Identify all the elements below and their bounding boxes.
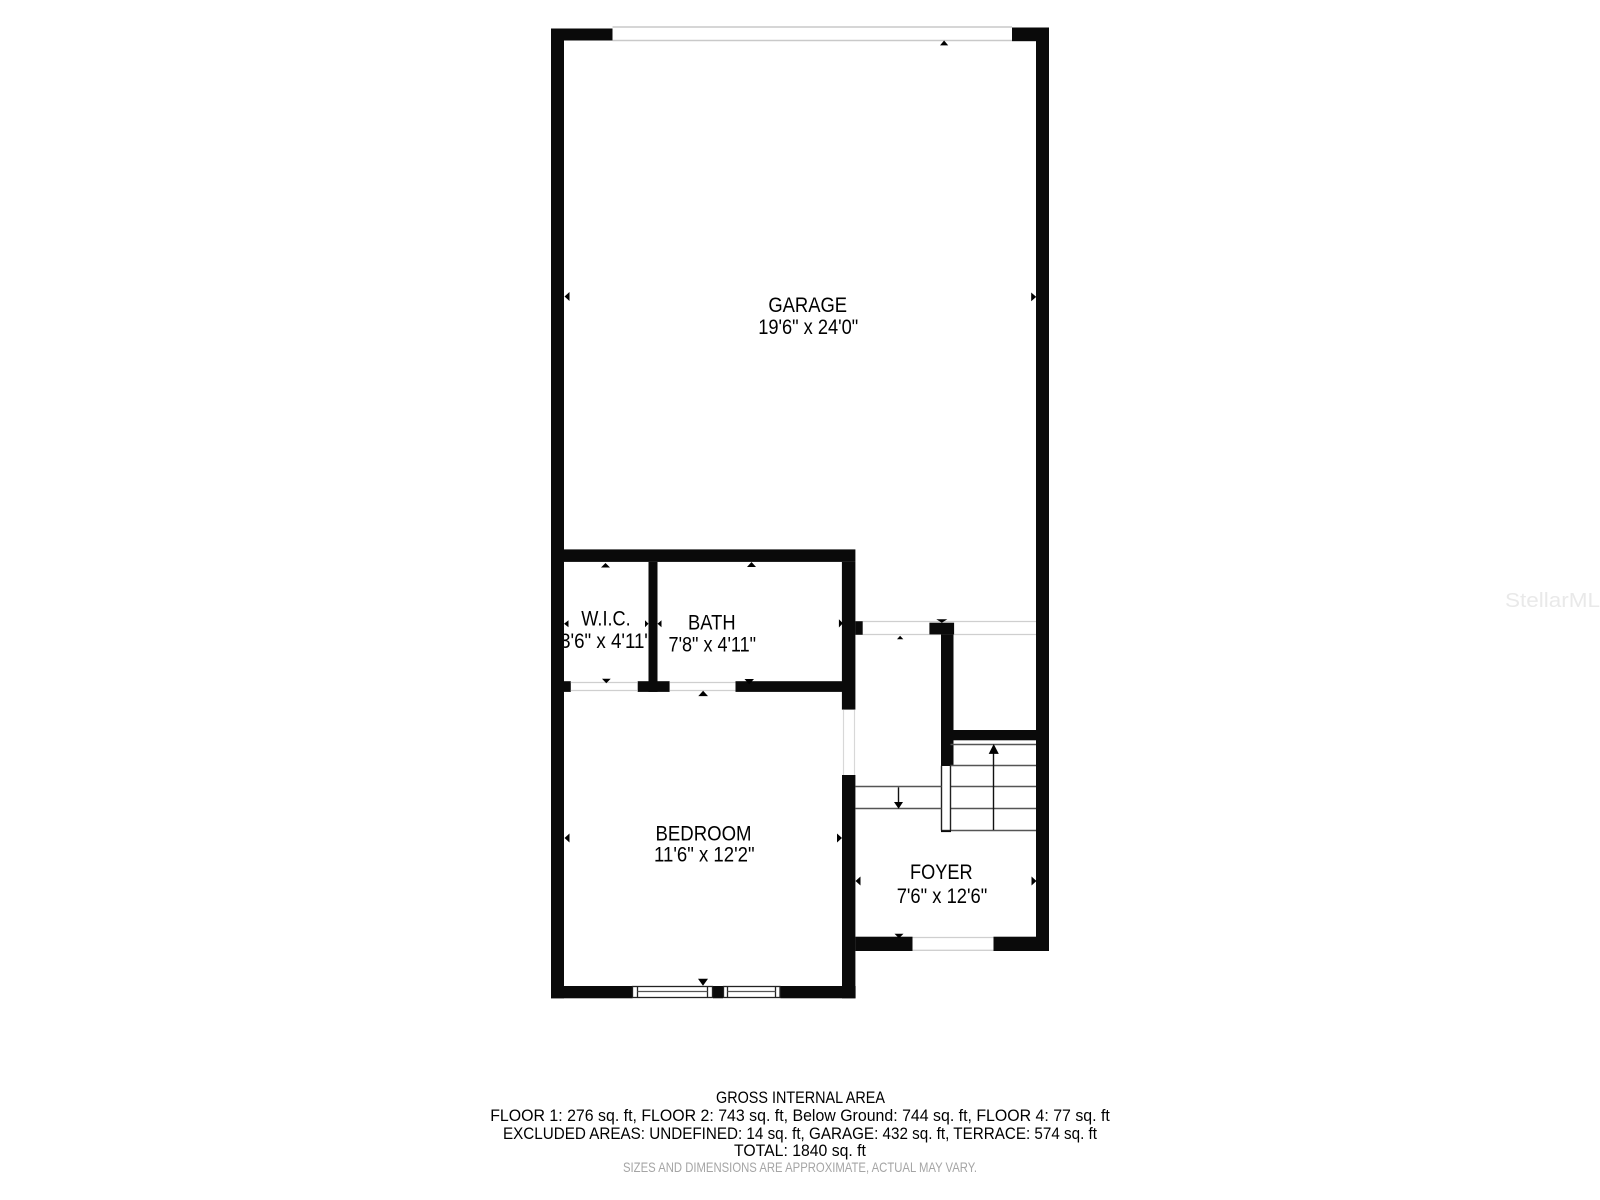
svg-text:BEDROOM: BEDROOM: [656, 823, 752, 846]
svg-text:19'6" x 24'0": 19'6" x 24'0": [758, 316, 858, 339]
svg-text:FOYER: FOYER: [910, 861, 973, 884]
svg-text:GARAGE: GARAGE: [768, 294, 847, 317]
svg-text:GROSS INTERNAL AREA: GROSS INTERNAL AREA: [716, 1089, 885, 1107]
svg-text:11'6" x 12'2": 11'6" x 12'2": [654, 843, 755, 866]
svg-text:FLOOR 1: 276 sq. ft, FLOOR 2:: FLOOR 1: 276 sq. ft, FLOOR 2: 743 sq. ft…: [490, 1106, 1110, 1125]
svg-text:7'6" x 12'6": 7'6" x 12'6": [897, 885, 988, 908]
svg-text:SIZES AND DIMENSIONS ARE APPRO: SIZES AND DIMENSIONS ARE APPROXIMATE, AC…: [623, 1159, 977, 1175]
svg-text:3'6" x 4'11": 3'6" x 4'11": [560, 630, 651, 653]
svg-text:TOTAL: 1840 sq. ft: TOTAL: 1840 sq. ft: [734, 1141, 866, 1160]
svg-text:StellarMLS: StellarMLS: [1505, 590, 1600, 612]
svg-text:7'8" x 4'11": 7'8" x 4'11": [669, 634, 757, 657]
svg-text:BATH: BATH: [688, 612, 736, 635]
svg-text:W.I.C.: W.I.C.: [581, 607, 630, 630]
